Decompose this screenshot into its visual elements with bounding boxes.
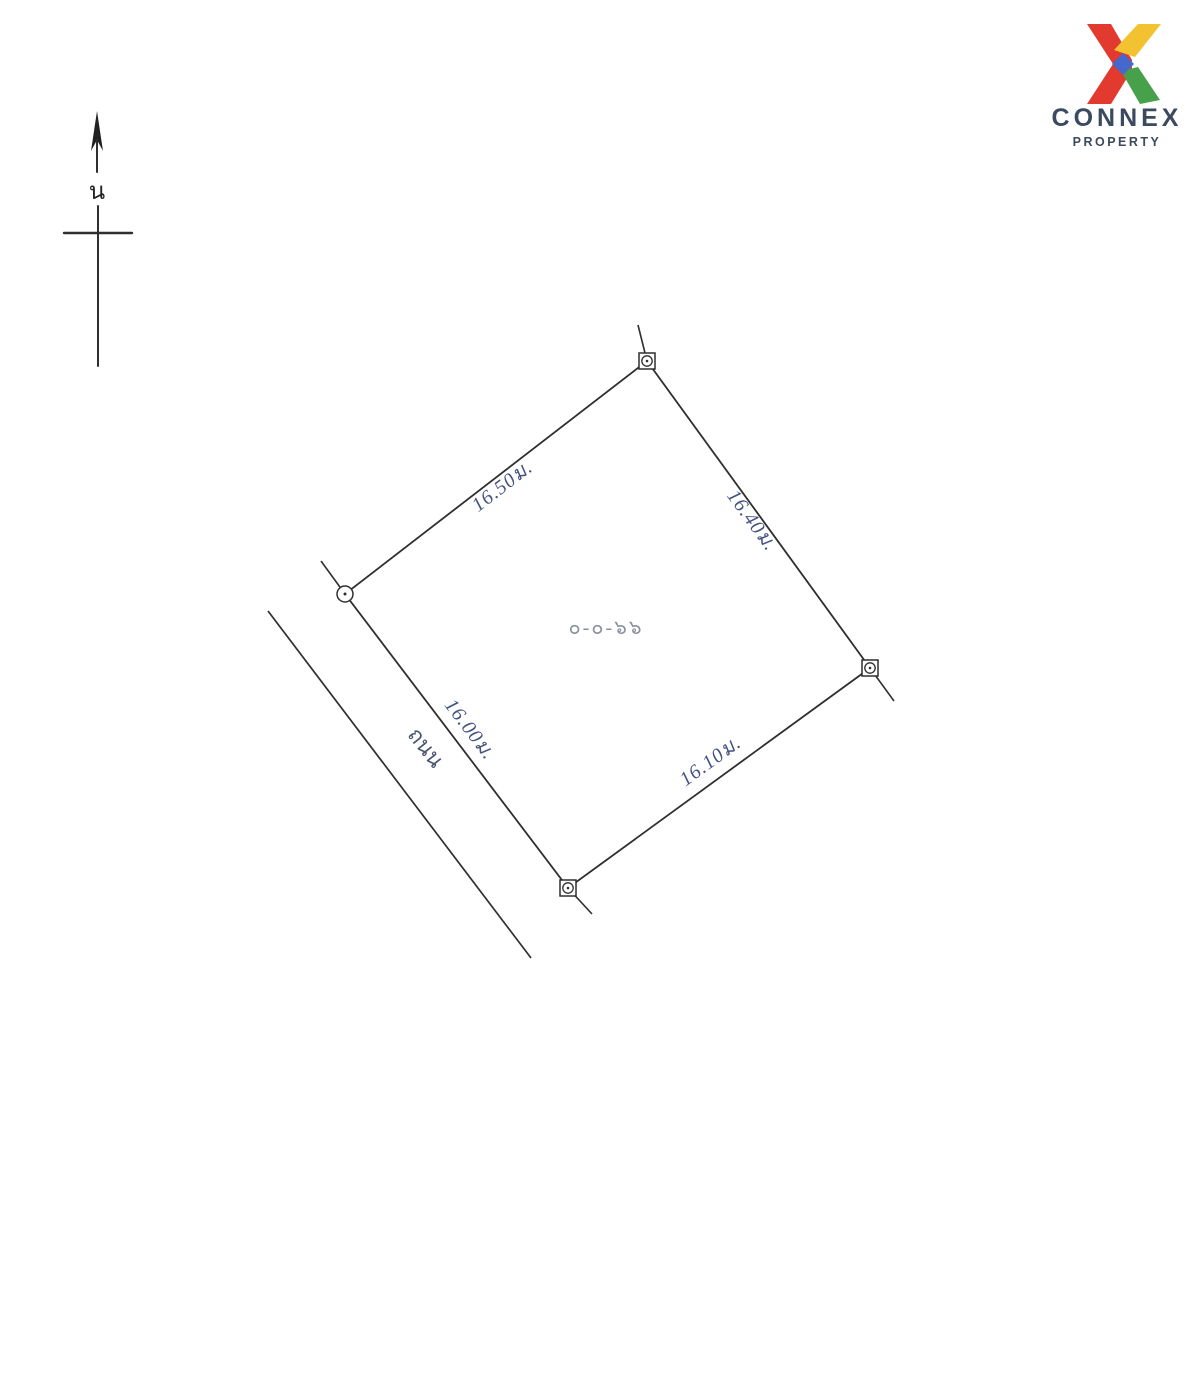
survey-sheet: น ถนน [0, 0, 1200, 1383]
marker-dot [646, 360, 649, 363]
north-indicator: น [64, 111, 132, 366]
land-plot-diagram: น ถนน [0, 0, 1200, 1383]
plot-area-label: ๐-๐-๖๖ [568, 617, 643, 639]
logo-brand-text: CONNEX [1042, 106, 1192, 131]
corner-marker-right [862, 660, 878, 676]
logo-yellow-arm [1114, 24, 1161, 57]
north-label: น [89, 177, 105, 205]
corner-marker-bottom [560, 880, 576, 896]
road-label: ถนน [403, 723, 449, 773]
logo-tagline-text: PROPERTY [1042, 136, 1192, 149]
connex-logo: CONNEX PROPERTY [1042, 24, 1192, 149]
marker-dot [869, 667, 872, 670]
marker-dot [567, 887, 570, 890]
marker-dot [344, 593, 347, 596]
connex-logo-mark [1065, 24, 1169, 104]
corner-marker-left [337, 586, 353, 602]
logo-green-arm [1121, 67, 1160, 104]
corner-marker-top [639, 353, 655, 369]
